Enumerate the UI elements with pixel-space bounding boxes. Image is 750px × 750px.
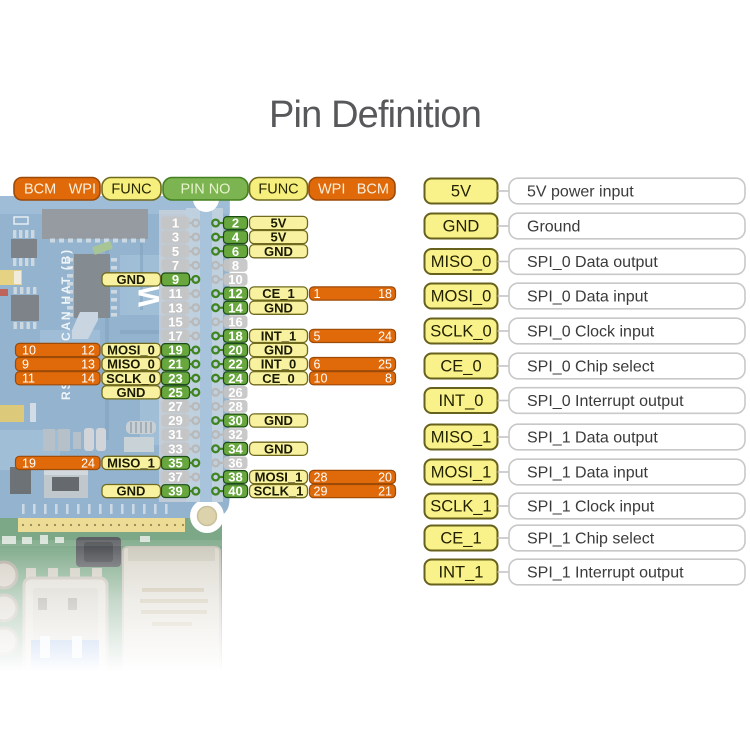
svg-text:5: 5 [172, 244, 179, 259]
svg-text:SPI_1 Chip select: SPI_1 Chip select [527, 531, 655, 548]
svg-text:GND: GND [443, 217, 480, 235]
svg-text:SPI_1 Data output: SPI_1 Data output [527, 430, 658, 447]
svg-text:35: 35 [168, 456, 182, 471]
svg-text:GND: GND [264, 441, 293, 456]
svg-text:5V: 5V [271, 216, 287, 231]
svg-text:40: 40 [228, 484, 242, 499]
svg-text:SCLK_1: SCLK_1 [254, 484, 304, 499]
svg-text:15: 15 [168, 314, 182, 329]
svg-text:34: 34 [228, 441, 243, 456]
svg-text:8: 8 [232, 258, 239, 273]
svg-text:PIN NO: PIN NO [181, 182, 231, 198]
svg-text:5V power input: 5V power input [527, 184, 634, 201]
svg-text:24: 24 [81, 456, 95, 470]
svg-text:SCLK_0: SCLK_0 [430, 322, 491, 340]
svg-text:11: 11 [22, 372, 35, 386]
svg-text:GND: GND [117, 272, 146, 287]
svg-text:CE_0: CE_0 [262, 371, 295, 386]
svg-text:20: 20 [228, 343, 242, 358]
svg-text:23: 23 [168, 371, 182, 386]
svg-text:26: 26 [228, 385, 242, 400]
svg-text:6: 6 [314, 358, 321, 372]
svg-text:10: 10 [22, 344, 36, 358]
svg-text:25: 25 [168, 385, 182, 400]
svg-text:29: 29 [314, 485, 328, 499]
svg-text:Ground: Ground [527, 219, 580, 236]
svg-text:INT_1: INT_1 [261, 329, 296, 344]
svg-text:SPI_0 Data output: SPI_0 Data output [527, 254, 658, 271]
svg-text:MISO_0: MISO_0 [107, 357, 155, 372]
svg-text:14: 14 [228, 300, 243, 315]
svg-text:MISO_1: MISO_1 [107, 456, 155, 471]
svg-text:16: 16 [228, 314, 242, 329]
svg-text:36: 36 [228, 456, 242, 471]
svg-text:MOSI_0: MOSI_0 [107, 343, 155, 358]
svg-text:21: 21 [378, 485, 392, 499]
svg-text:18: 18 [228, 329, 242, 344]
svg-text:GND: GND [264, 413, 293, 428]
svg-text:FUNC: FUNC [111, 182, 151, 198]
svg-text:30: 30 [228, 413, 242, 428]
svg-text:10: 10 [228, 272, 242, 287]
svg-text:2: 2 [232, 216, 239, 231]
svg-text:20: 20 [378, 471, 392, 485]
svg-text:17: 17 [168, 329, 182, 344]
svg-text:MISO_1: MISO_1 [431, 428, 492, 446]
svg-text:39: 39 [168, 484, 182, 499]
svg-text:5: 5 [314, 329, 321, 343]
svg-text:SPI_1 Data input: SPI_1 Data input [527, 465, 649, 482]
svg-text:38: 38 [228, 470, 242, 485]
svg-text:MOSI_0: MOSI_0 [431, 287, 492, 305]
svg-text:14: 14 [81, 372, 95, 386]
svg-text:GND: GND [117, 385, 146, 400]
svg-text:SPI_0 Chip select: SPI_0 Chip select [527, 359, 655, 376]
svg-text:24: 24 [378, 329, 392, 343]
svg-text:33: 33 [168, 441, 182, 456]
svg-text:25: 25 [378, 358, 392, 372]
svg-text:MOSI_1: MOSI_1 [255, 470, 303, 485]
svg-text:MOSI_1: MOSI_1 [431, 463, 492, 481]
svg-text:19: 19 [22, 456, 36, 470]
svg-text:INT_1: INT_1 [439, 563, 484, 581]
svg-text:11: 11 [169, 286, 183, 301]
svg-text:INT_0: INT_0 [261, 357, 296, 372]
svg-text:GND: GND [264, 300, 293, 315]
svg-text:CE_0: CE_0 [440, 357, 481, 375]
svg-text:7: 7 [172, 258, 179, 273]
svg-text:9: 9 [22, 358, 29, 372]
svg-text:12: 12 [81, 344, 95, 358]
svg-text:37: 37 [168, 470, 182, 485]
svg-text:MISO_0: MISO_0 [431, 253, 492, 271]
svg-text:22: 22 [228, 357, 242, 372]
svg-text:SPI_0 Clock input: SPI_0 Clock input [527, 324, 655, 341]
svg-text:13: 13 [81, 358, 95, 372]
svg-text:CE_1: CE_1 [440, 529, 481, 547]
svg-text:24: 24 [228, 371, 243, 386]
svg-text:GND: GND [264, 244, 293, 259]
svg-text:1: 1 [172, 216, 179, 231]
svg-text:SCLK_1: SCLK_1 [430, 497, 491, 515]
svg-text:BCM: BCM [24, 182, 56, 198]
svg-text:SPI_1 Interrupt output: SPI_1 Interrupt output [527, 565, 684, 582]
svg-text:13: 13 [168, 300, 182, 315]
svg-text:29: 29 [168, 413, 182, 428]
svg-text:21: 21 [168, 357, 182, 372]
svg-text:FUNC: FUNC [258, 182, 298, 198]
svg-text:BCM: BCM [357, 182, 389, 198]
svg-text:3: 3 [172, 230, 179, 245]
svg-text:4: 4 [232, 230, 240, 245]
svg-text:8: 8 [385, 372, 392, 386]
svg-text:GND: GND [264, 343, 293, 358]
svg-text:19: 19 [168, 343, 182, 358]
svg-text:28: 28 [314, 471, 328, 485]
svg-text:Pin Definition: Pin Definition [269, 94, 481, 136]
svg-text:27: 27 [168, 399, 182, 414]
svg-text:6: 6 [232, 244, 239, 259]
svg-text:5V: 5V [451, 182, 471, 200]
svg-text:32: 32 [228, 427, 242, 442]
svg-text:INT_0: INT_0 [439, 392, 484, 410]
svg-text:1: 1 [314, 287, 321, 301]
svg-text:5V: 5V [271, 230, 287, 245]
svg-text:SPI_0 Interrupt output: SPI_0 Interrupt output [527, 393, 684, 410]
svg-text:12: 12 [228, 286, 242, 301]
svg-text:SPI_1 Clock input: SPI_1 Clock input [527, 499, 655, 516]
svg-text:SCLK_0: SCLK_0 [106, 371, 156, 386]
svg-text:WPI: WPI [69, 182, 96, 198]
svg-text:9: 9 [172, 272, 179, 287]
svg-text:28: 28 [228, 399, 242, 414]
svg-text:SPI_0 Data input: SPI_0 Data input [527, 289, 649, 306]
svg-text:WPI: WPI [318, 182, 345, 198]
svg-text:10: 10 [314, 372, 328, 386]
svg-text:CE_1: CE_1 [262, 286, 295, 301]
svg-text:31: 31 [168, 427, 182, 442]
svg-text:GND: GND [117, 484, 146, 499]
svg-text:18: 18 [378, 287, 392, 301]
